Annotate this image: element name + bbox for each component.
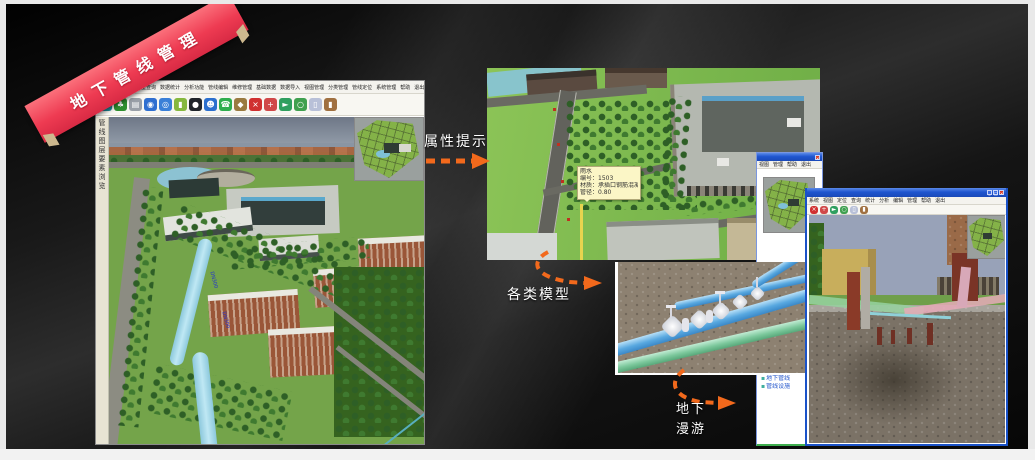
icon-glyph: + [267, 98, 274, 111]
camera-icon[interactable]: ● [189, 98, 202, 111]
icon-glyph: ○ [297, 98, 304, 111]
shield-icon[interactable]: ◆ [234, 98, 247, 111]
minimize-button[interactable]: _ [987, 190, 992, 195]
menu-item[interactable]: 编辑 [893, 197, 903, 204]
icon-glyph: ◆ [237, 98, 243, 111]
pillar [847, 272, 860, 330]
maximize-button[interactable]: □ [993, 190, 998, 195]
icon-glyph: × [252, 98, 259, 111]
river [168, 237, 213, 367]
icon-glyph: ▮ [328, 98, 332, 111]
icon-glyph: ▤ [132, 98, 140, 111]
menu-item[interactable]: 管线定位 [352, 84, 372, 91]
pipe-diameter-label: DN300 [208, 271, 218, 289]
menu-item[interactable]: 退出 [935, 197, 945, 204]
menu-item[interactable]: 统计 [865, 197, 875, 204]
menu-item[interactable]: 维修管理 [232, 84, 252, 91]
pipe-models-screenshot[interactable] [615, 262, 805, 375]
chart-icon[interactable]: ▮ [174, 98, 187, 111]
icon-glyph: ▮ [178, 98, 182, 111]
icon-glyph: ▯ [313, 98, 317, 111]
frame-right [1028, 0, 1035, 460]
folder-icon[interactable]: ▮ [860, 206, 868, 214]
menu-item[interactable]: 帮助 [400, 84, 410, 91]
icon-glyph: ☻ [206, 98, 214, 111]
main-overview-map[interactable] [357, 119, 419, 178]
icon-glyph: ► [282, 98, 288, 111]
main-3d-viewport[interactable]: DN300 DN300 [109, 117, 424, 444]
menu-item[interactable]: 帮助 [921, 197, 931, 204]
attribute-tooltip: 雨水 编号：1503 材质：承插口钢筋混凝土管 管径：0.80 [577, 166, 641, 200]
side-panel-char: 览 [96, 182, 108, 191]
user-icon[interactable]: ☻ [204, 98, 217, 111]
document-icon[interactable]: ▯ [850, 206, 858, 214]
main-overview-map-panel[interactable] [354, 117, 424, 181]
slide-canvas: 视图显示定位模型查询数据统计分析功能管线编辑维修管理基础数据数据导入视图管理分类… [0, 0, 1035, 460]
earth-icon[interactable]: ○ [294, 98, 307, 111]
roam-toolbar: ×+►○▯▮ [807, 205, 1006, 215]
side-panel-char: 层 [96, 146, 108, 155]
roam-menubar: 系统视图定位查询统计分析编辑管理帮助退出 [807, 197, 1006, 205]
menu-item[interactable]: 系统管理 [376, 84, 396, 91]
navigate-icon[interactable]: ► [279, 98, 292, 111]
icon-glyph: ● [192, 98, 199, 111]
globe-icon[interactable]: ◉ [144, 98, 157, 111]
icon-glyph: × [811, 206, 816, 214]
main-side-panel[interactable]: 管线图层要素浏览 [96, 117, 109, 444]
menu-item[interactable]: 视图 [823, 197, 833, 204]
layers-icon[interactable]: ▤ [129, 98, 142, 111]
side-panel-char: 图 [96, 137, 108, 146]
main-toolbar: ⌂♣▤◉◎▮●☻☎◆×+►○▯▮ [96, 94, 424, 116]
overview-menubar: 视图管理帮助退出 [757, 161, 822, 169]
overview-titlebar[interactable]: × [757, 153, 822, 161]
view-icon[interactable]: ◎ [159, 98, 172, 111]
menu-item[interactable]: 数据统计 [160, 84, 180, 91]
menu-item[interactable]: 定位 [837, 197, 847, 204]
frame-bottom [0, 449, 1035, 460]
frame-top [0, 0, 1035, 4]
menu-item[interactable]: 退出 [801, 161, 811, 168]
menu-item[interactable]: 数据导入 [280, 84, 300, 91]
side-panel-char: 浏 [96, 173, 108, 182]
menu-item[interactable]: 视图管理 [304, 84, 324, 91]
icon-glyph: ☎ [221, 98, 231, 111]
close-button[interactable]: × [999, 190, 1004, 195]
menu-item[interactable]: 查询 [851, 197, 861, 204]
icon-glyph: ○ [841, 206, 846, 214]
close-tool-icon[interactable]: × [249, 98, 262, 111]
compass-icon[interactable]: + [820, 206, 828, 214]
icon-glyph: ◉ [147, 98, 154, 111]
navigate-icon[interactable]: ► [830, 206, 838, 214]
icon-glyph: + [821, 206, 826, 214]
menu-item[interactable]: 分析 [879, 197, 889, 204]
icon-glyph: ► [832, 206, 837, 214]
menu-item[interactable]: 视图 [759, 161, 769, 168]
side-panel-char: 管 [96, 119, 108, 128]
roam-overview-map[interactable] [969, 217, 1004, 256]
close-button[interactable]: × [815, 155, 820, 160]
roam-3d-viewport[interactable] [809, 215, 1005, 443]
phone-icon[interactable]: ☎ [219, 98, 232, 111]
document-icon[interactable]: ▯ [309, 98, 322, 111]
icon-glyph: ◎ [162, 98, 169, 111]
menu-item[interactable]: 管理 [773, 161, 783, 168]
menu-item[interactable]: 系统 [809, 197, 819, 204]
close-tool-icon[interactable]: × [810, 206, 818, 214]
folder-icon[interactable]: ▮ [324, 98, 337, 111]
menu-item[interactable]: 帮助 [787, 161, 797, 168]
dashed-arrow-attribute [424, 150, 494, 172]
side-panel-char: 素 [96, 164, 108, 173]
roam-overview-map-panel[interactable] [967, 215, 1005, 259]
menu-item[interactable]: 管线编辑 [208, 84, 228, 91]
icon-glyph: ▮ [862, 206, 865, 214]
frame-left [0, 0, 6, 460]
side-panel-char: 要 [96, 155, 108, 164]
label-models: 各类模型 [507, 284, 571, 304]
main-app-window: 视图显示定位模型查询数据统计分析功能管线编辑维修管理基础数据数据导入视图管理分类… [95, 80, 425, 445]
label-roam-line2: 漫游 [676, 418, 706, 437]
compass-icon[interactable]: + [264, 98, 277, 111]
side-panel-char: 线 [96, 128, 108, 137]
roam-titlebar[interactable]: _ □ × [807, 188, 1006, 197]
label-roam-line1: 地下 [676, 398, 706, 417]
label-attribute-tip: 属性提示 [424, 131, 488, 151]
menu-item[interactable]: 基础数据 [256, 84, 276, 91]
pillar [861, 267, 870, 329]
menu-item[interactable]: 退出 [414, 84, 424, 91]
menu-item[interactable]: 分类管理 [328, 84, 348, 91]
menu-item[interactable]: 分析功能 [184, 84, 204, 91]
menu-item[interactable]: 管理 [907, 197, 917, 204]
earth-icon[interactable]: ○ [840, 206, 848, 214]
icon-glyph: ▯ [852, 206, 855, 214]
roam-window: _ □ × 系统视图定位查询统计分析编辑管理帮助退出 ×+►○▯▮ [805, 188, 1008, 446]
